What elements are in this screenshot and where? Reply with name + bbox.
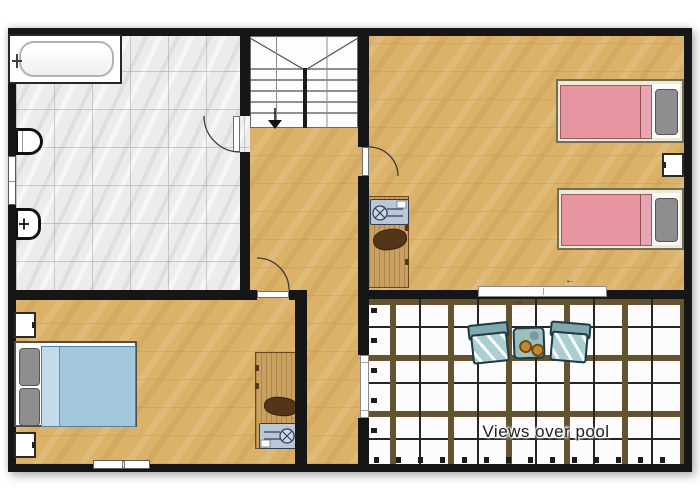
pillow [19, 388, 40, 426]
staircase [250, 36, 358, 128]
interior-wall [358, 418, 369, 464]
bathtub-faucet-icon [12, 53, 23, 69]
bathroom-window [8, 156, 16, 205]
chair-seat [470, 331, 510, 365]
laptop-glyph [260, 424, 296, 448]
terrace-railing-left [371, 308, 377, 454]
chair-seat [549, 330, 588, 363]
slide-left-arrow-icon: ← [565, 276, 575, 286]
interior-wall [295, 290, 307, 464]
terrace-chair-1 [466, 321, 512, 365]
bathtub [8, 34, 122, 84]
interior-wall [358, 176, 369, 355]
terrace-railing-bottom [374, 457, 676, 463]
drawer-handle [405, 259, 409, 265]
desk-double-room [255, 352, 298, 449]
laptop-2 [259, 423, 297, 449]
drawer-handle [405, 225, 409, 231]
interior-wall [240, 152, 250, 300]
nightstand-bottom [14, 432, 36, 458]
interior-wall [16, 290, 257, 300]
cup [519, 340, 532, 353]
sheet-fold [640, 195, 651, 245]
pillow [19, 348, 40, 386]
single-bed-2 [557, 188, 684, 250]
hall-terrace-door [360, 355, 369, 418]
bathtub-basin [19, 41, 114, 77]
bathroom-door [233, 116, 240, 152]
pillow [655, 198, 678, 242]
desk-twin-room [368, 196, 409, 288]
drawer-handle [255, 365, 259, 371]
laptop-glyph [371, 200, 408, 224]
office-chair-2 [263, 395, 299, 417]
floor-plan: ← → [8, 28, 692, 472]
mattress [560, 85, 652, 139]
terrace-sliding-door [478, 286, 607, 297]
interior-wall [358, 36, 369, 147]
double-bedroom-door [257, 291, 289, 298]
laptop-1 [370, 199, 409, 225]
bedroom-window [93, 460, 150, 469]
twin-bedroom-door [362, 147, 369, 176]
mattress [41, 346, 136, 427]
drawer-handle [255, 383, 259, 389]
twin-nightstand [662, 153, 684, 177]
office-chair-1 [372, 227, 409, 253]
double-bed [14, 341, 137, 427]
terrace-chair-2 [546, 320, 591, 364]
terrace-annotation: Views over pool [461, 422, 631, 442]
mattress [561, 194, 652, 246]
terrace-table [512, 326, 545, 359]
slide-right-arrow-icon: → [513, 297, 523, 307]
interior-wall [240, 36, 250, 116]
bidet [16, 208, 41, 240]
cup [531, 343, 544, 356]
pillow [655, 89, 678, 135]
toilet [16, 128, 43, 155]
nightstand-top [14, 312, 36, 338]
sheet-fold [640, 86, 651, 138]
single-bed-1 [556, 79, 684, 143]
